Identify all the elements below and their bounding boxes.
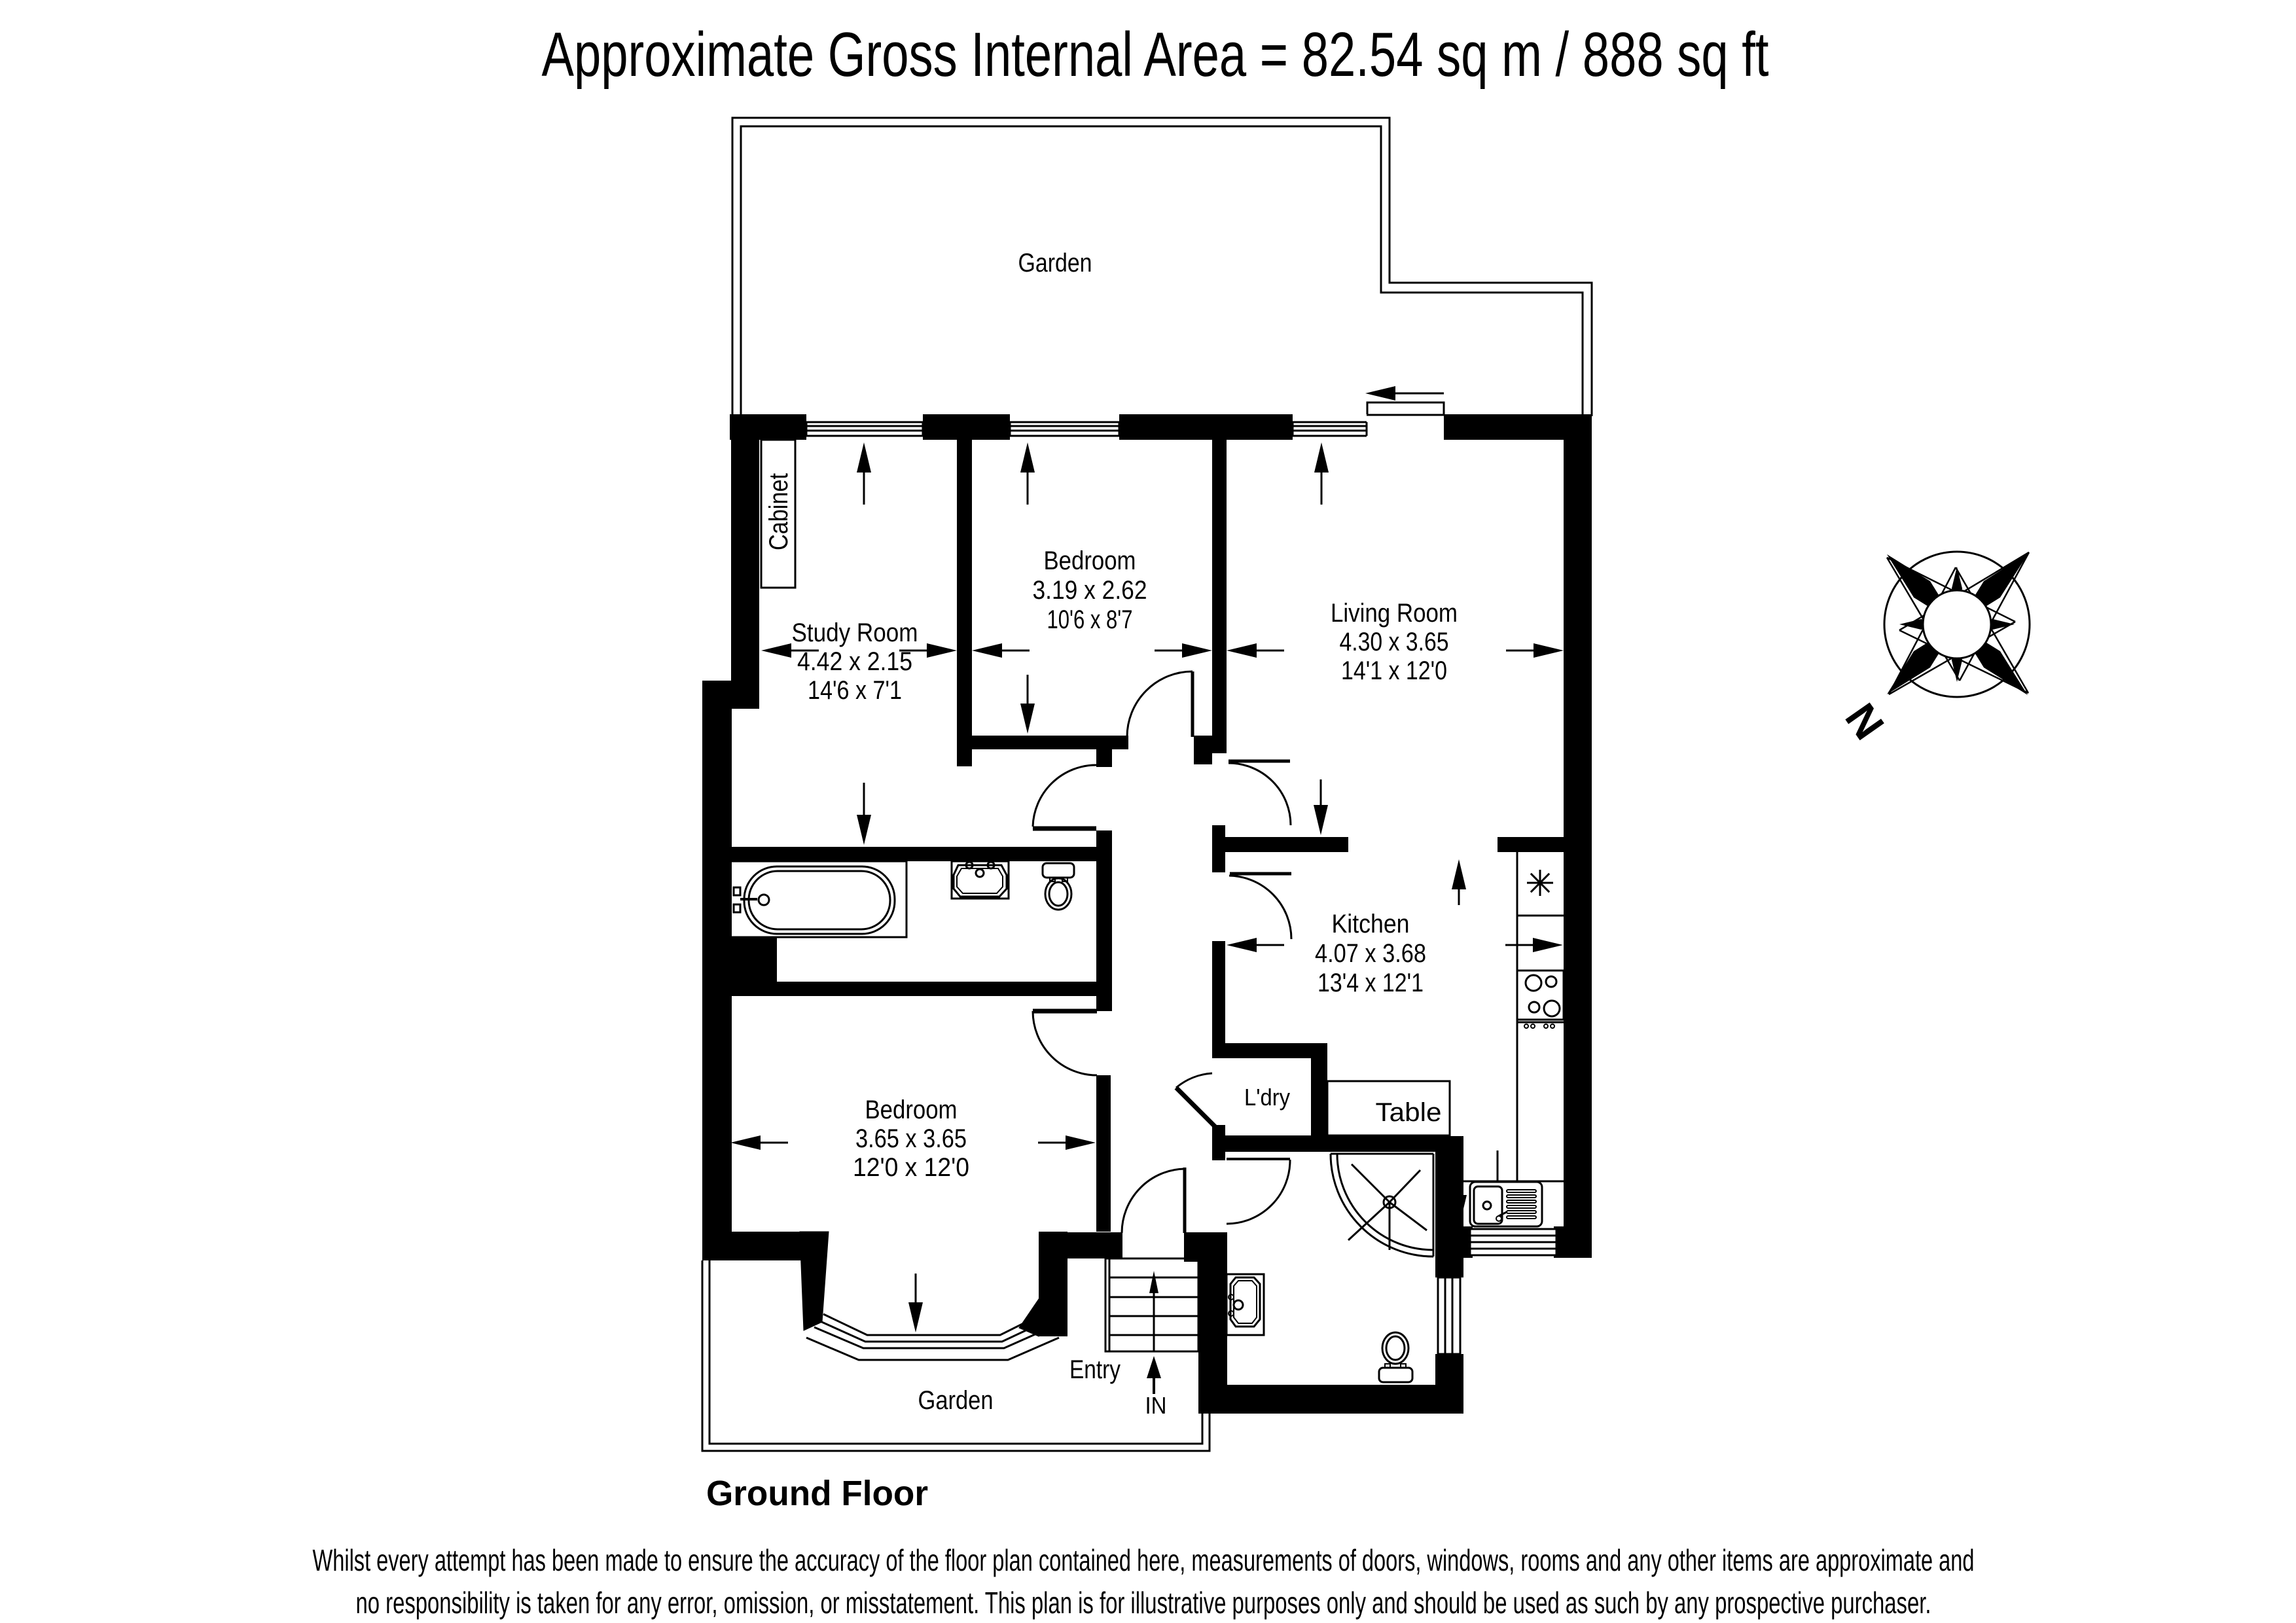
svg-text:Garden: Garden [918,1386,994,1415]
svg-text:4.07 x 3.68: 4.07 x 3.68 [1315,939,1426,968]
svg-text:L'dry: L'dry [1244,1084,1290,1111]
svg-text:4.42 x 2.15: 4.42 x 2.15 [797,647,912,676]
svg-text:Table: Table [1376,1098,1442,1127]
svg-text:10'6 x 8'7: 10'6 x 8'7 [1047,605,1133,634]
svg-text:Whilst every attempt has been: Whilst every attempt has been made to en… [313,1543,1975,1577]
svg-text:12'0 x 12'0: 12'0 x 12'0 [853,1153,969,1182]
svg-text:Study Room: Study Room [792,618,918,647]
svg-text:Bedroom: Bedroom [865,1096,958,1124]
svg-text:IN: IN [1145,1392,1167,1419]
svg-text:no responsibility is taken for: no responsibility is taken for any error… [356,1586,1931,1620]
svg-text:Ground Floor: Ground Floor [706,1474,928,1513]
svg-text:Approximate Gross Internal Are: Approximate Gross Internal Area = 82.54 … [542,20,1769,90]
svg-text:Living Room: Living Room [1331,599,1458,628]
svg-text:Garden: Garden [1018,249,1092,277]
svg-text:3.65 x 3.65: 3.65 x 3.65 [855,1124,967,1153]
svg-text:3.19 x 2.62: 3.19 x 2.62 [1033,576,1147,605]
svg-text:Bedroom: Bedroom [1044,546,1136,575]
svg-text:14'6 x 7'1: 14'6 x 7'1 [808,676,902,705]
svg-text:Entry: Entry [1069,1355,1121,1384]
svg-text:13'4 x 12'1: 13'4 x 12'1 [1318,969,1424,997]
svg-text:14'1 x 12'0: 14'1 x 12'0 [1341,656,1447,685]
svg-text:Kitchen: Kitchen [1332,910,1410,938]
svg-text:4.30 x 3.65: 4.30 x 3.65 [1340,628,1449,656]
svg-text:Cabinet: Cabinet [764,473,793,550]
